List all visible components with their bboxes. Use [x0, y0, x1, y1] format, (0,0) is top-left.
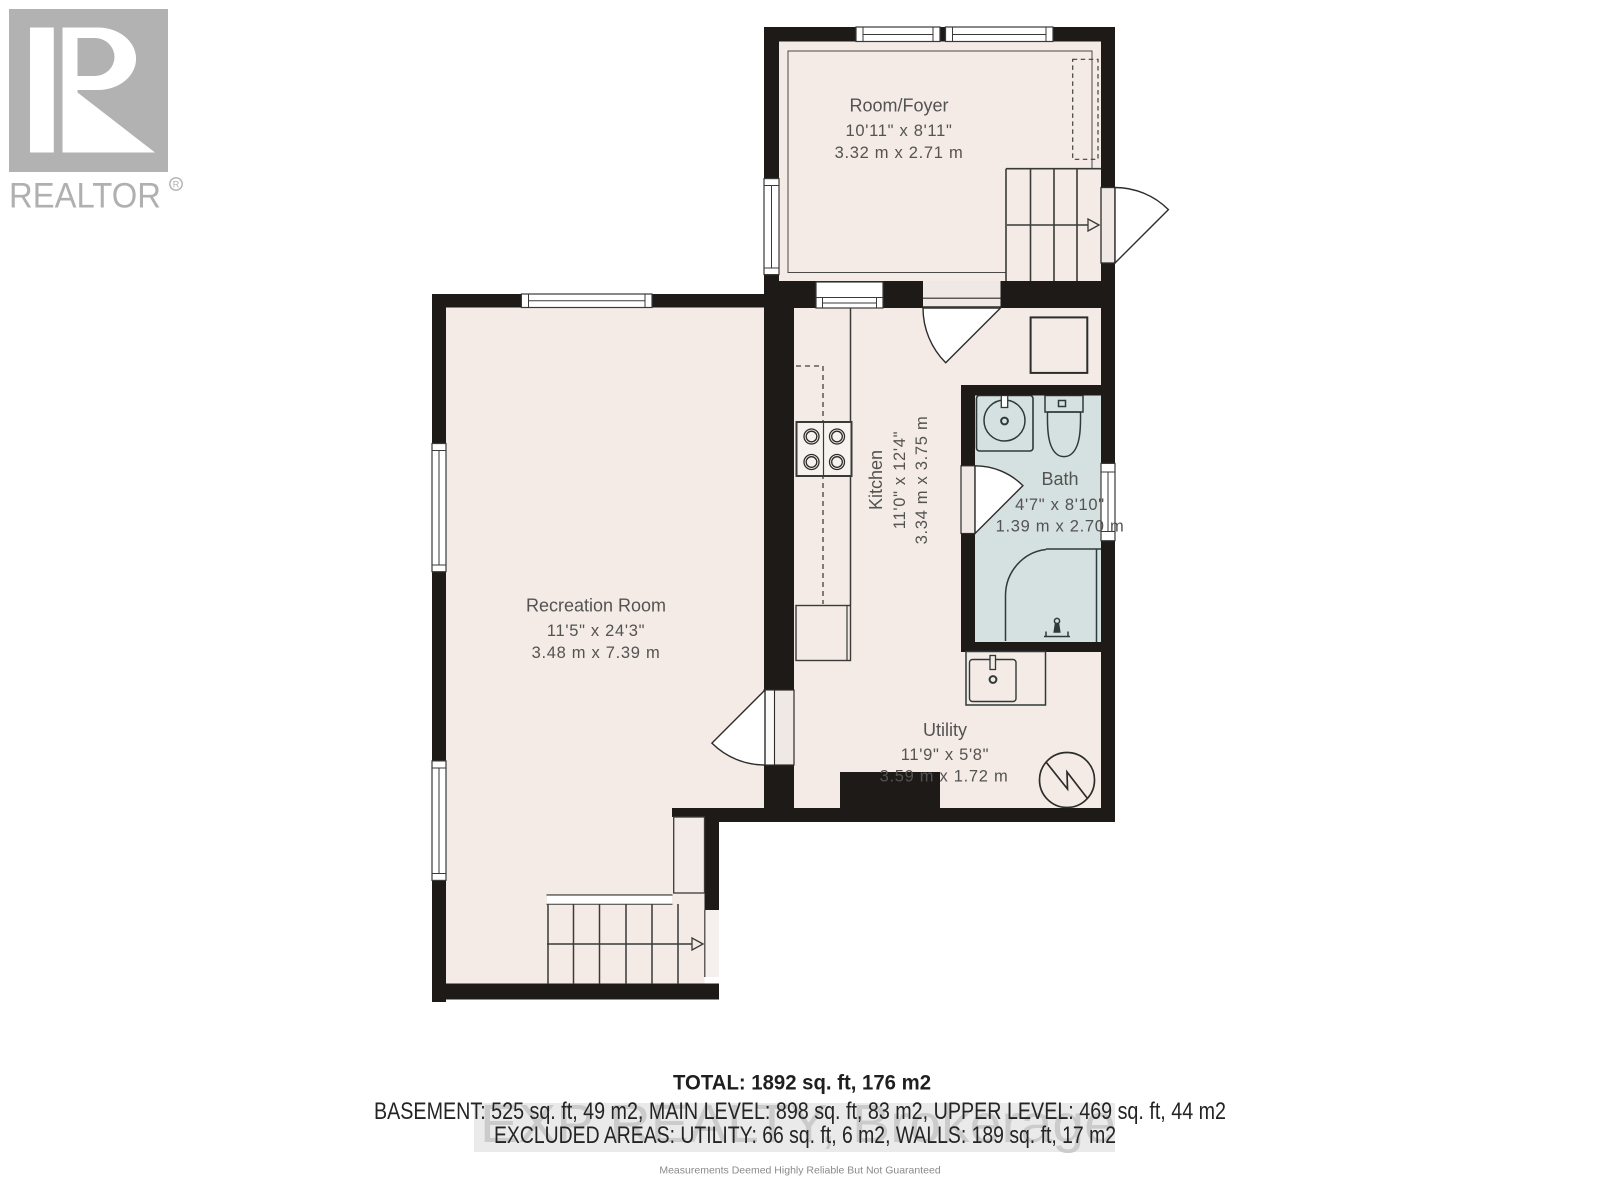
svg-text:BASEMENT: 525 sq. ft, 49 m2, M: BASEMENT: 525 sq. ft, 49 m2, MAIN LEVEL:… — [374, 1098, 1226, 1125]
svg-text:11'5" x 24'3": 11'5" x 24'3" — [547, 622, 645, 640]
svg-text:Bath: Bath — [1041, 469, 1078, 489]
svg-text:3.59 m x 1.72 m: 3.59 m x 1.72 m — [880, 768, 1009, 786]
svg-text:10'11" x 8'11": 10'11" x 8'11" — [845, 122, 952, 140]
svg-text:Measurements Deemed Highly Rel: Measurements Deemed Highly Reliable But … — [659, 1165, 940, 1177]
svg-text:Utility: Utility — [923, 720, 967, 740]
svg-text:4'7" x 8'10": 4'7" x 8'10" — [1015, 496, 1105, 514]
svg-text:Room/Foyer: Room/Foyer — [849, 96, 948, 116]
svg-text:Kitchen: Kitchen — [866, 450, 886, 510]
svg-text:R: R — [173, 180, 180, 190]
svg-text:EXCLUDED AREAS: UTILITY: 66 sq: EXCLUDED AREAS: UTILITY: 66 sq. ft, 6 m2… — [494, 1122, 1116, 1149]
svg-text:3.34 m x 3.75 m: 3.34 m x 3.75 m — [913, 416, 931, 545]
svg-text:1.39 m x 2.70 m: 1.39 m x 2.70 m — [996, 518, 1125, 536]
svg-text:3.48 m x 7.39 m: 3.48 m x 7.39 m — [532, 644, 661, 662]
svg-text:Recreation Room: Recreation Room — [526, 596, 666, 616]
svg-text:3.32 m x 2.71 m: 3.32 m x 2.71 m — [835, 144, 964, 162]
svg-text:TOTAL: 1892 sq. ft, 176 m2: TOTAL: 1892 sq. ft, 176 m2 — [673, 1071, 931, 1095]
svg-text:11'0" x 12'4": 11'0" x 12'4" — [891, 431, 909, 529]
svg-text:REALTOR: REALTOR — [9, 177, 161, 216]
svg-text:11'9" x 5'8": 11'9" x 5'8" — [901, 746, 990, 764]
